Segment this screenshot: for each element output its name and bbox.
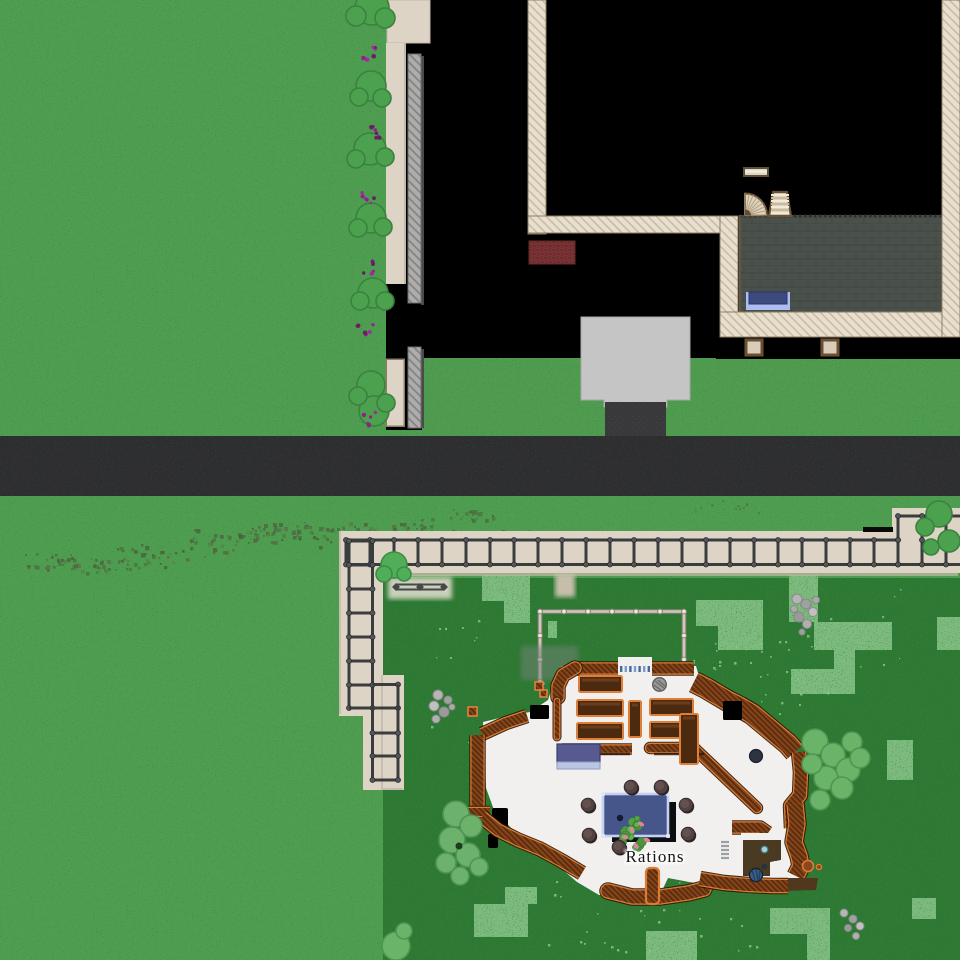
svg-text:Rations: Rations: [626, 847, 685, 866]
